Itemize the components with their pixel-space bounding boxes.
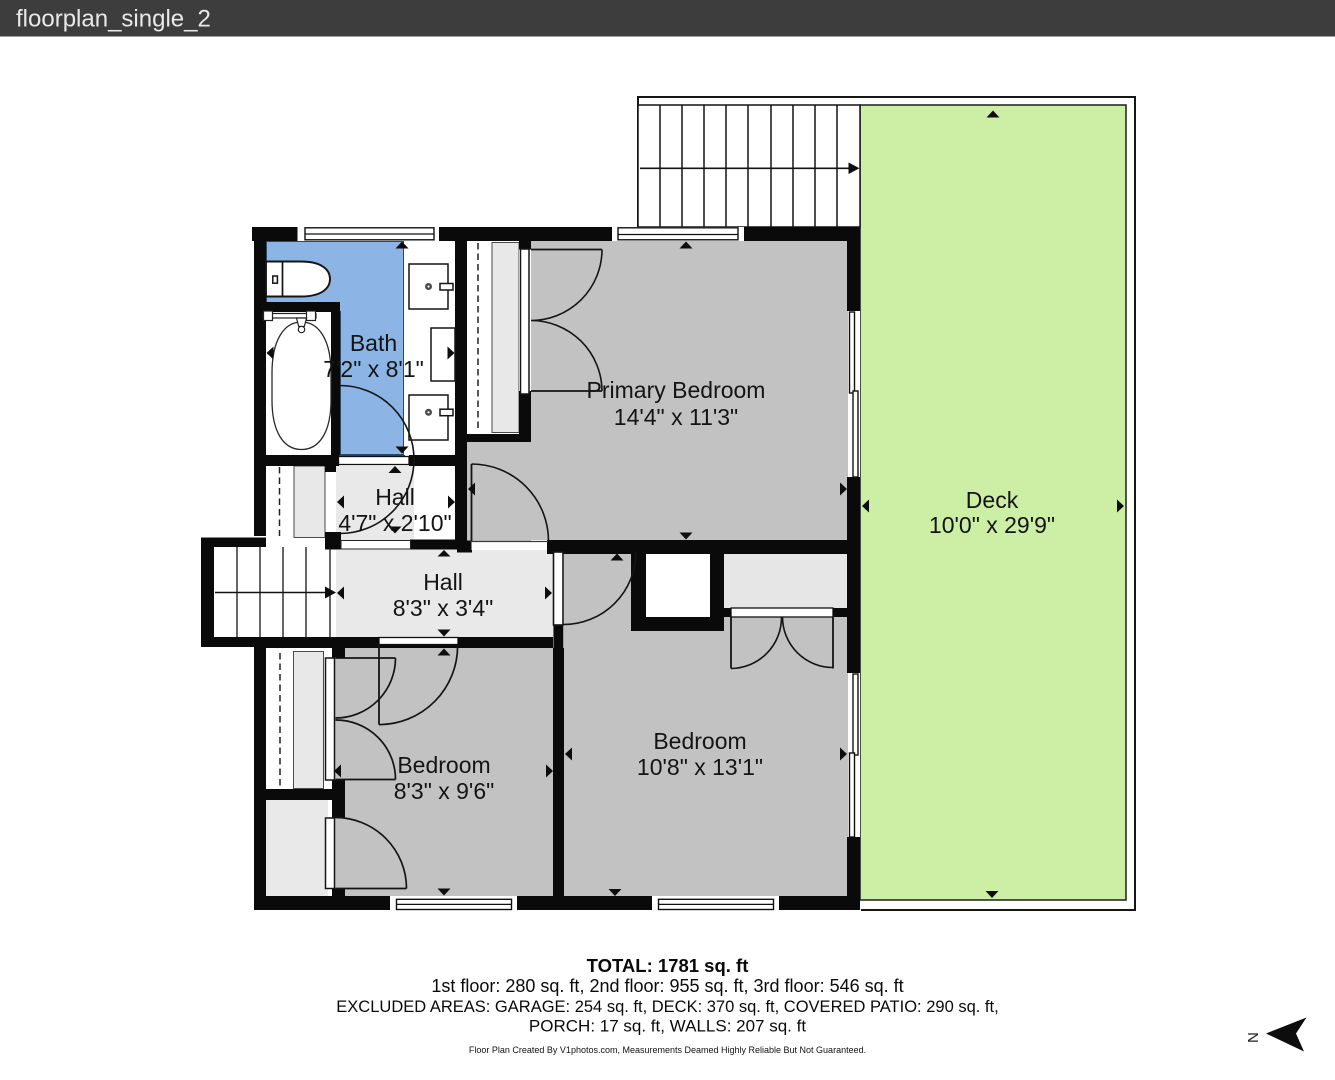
svg-text:Hall: Hall bbox=[423, 569, 463, 595]
svg-text:Hall: Hall bbox=[375, 484, 415, 510]
svg-text:TOTAL: 1781 sq. ft: TOTAL: 1781 sq. ft bbox=[587, 955, 749, 976]
svg-text:Primary Bedroom: Primary Bedroom bbox=[587, 377, 766, 403]
svg-text:10'0" x 29'9": 10'0" x 29'9" bbox=[929, 512, 1055, 538]
svg-text:10'8" x 13'1": 10'8" x 13'1" bbox=[637, 754, 763, 780]
svg-text:8'3" x 9'6": 8'3" x 9'6" bbox=[394, 778, 495, 804]
svg-text:Bath: Bath bbox=[350, 330, 397, 356]
svg-text:14'4" x 11'3": 14'4" x 11'3" bbox=[614, 404, 738, 430]
svg-text:Bedroom: Bedroom bbox=[397, 752, 490, 778]
svg-text:Floor Plan Created By V1photos: Floor Plan Created By V1photos.com, Meas… bbox=[469, 1045, 866, 1055]
svg-text:N: N bbox=[1244, 1032, 1261, 1043]
svg-text:7'2" x 8'1": 7'2" x 8'1" bbox=[323, 356, 424, 382]
svg-text:Bedroom: Bedroom bbox=[653, 728, 746, 754]
svg-text:PORCH: 17 sq. ft, WALLS: 207 s: PORCH: 17 sq. ft, WALLS: 207 sq. ft bbox=[529, 1017, 806, 1036]
svg-text:4'7" x 2'10": 4'7" x 2'10" bbox=[338, 510, 451, 536]
svg-text:EXCLUDED AREAS: GARAGE: 254 sq: EXCLUDED AREAS: GARAGE: 254 sq. ft, DECK… bbox=[336, 998, 998, 1016]
svg-text:floorplan_single_2: floorplan_single_2 bbox=[16, 6, 211, 33]
svg-text:1st floor: 280 sq. ft, 2nd flo: 1st floor: 280 sq. ft, 2nd floor: 955 sq… bbox=[431, 976, 903, 996]
svg-text:8'3" x 3'4": 8'3" x 3'4" bbox=[393, 595, 494, 621]
svg-text:Deck: Deck bbox=[966, 487, 1019, 513]
